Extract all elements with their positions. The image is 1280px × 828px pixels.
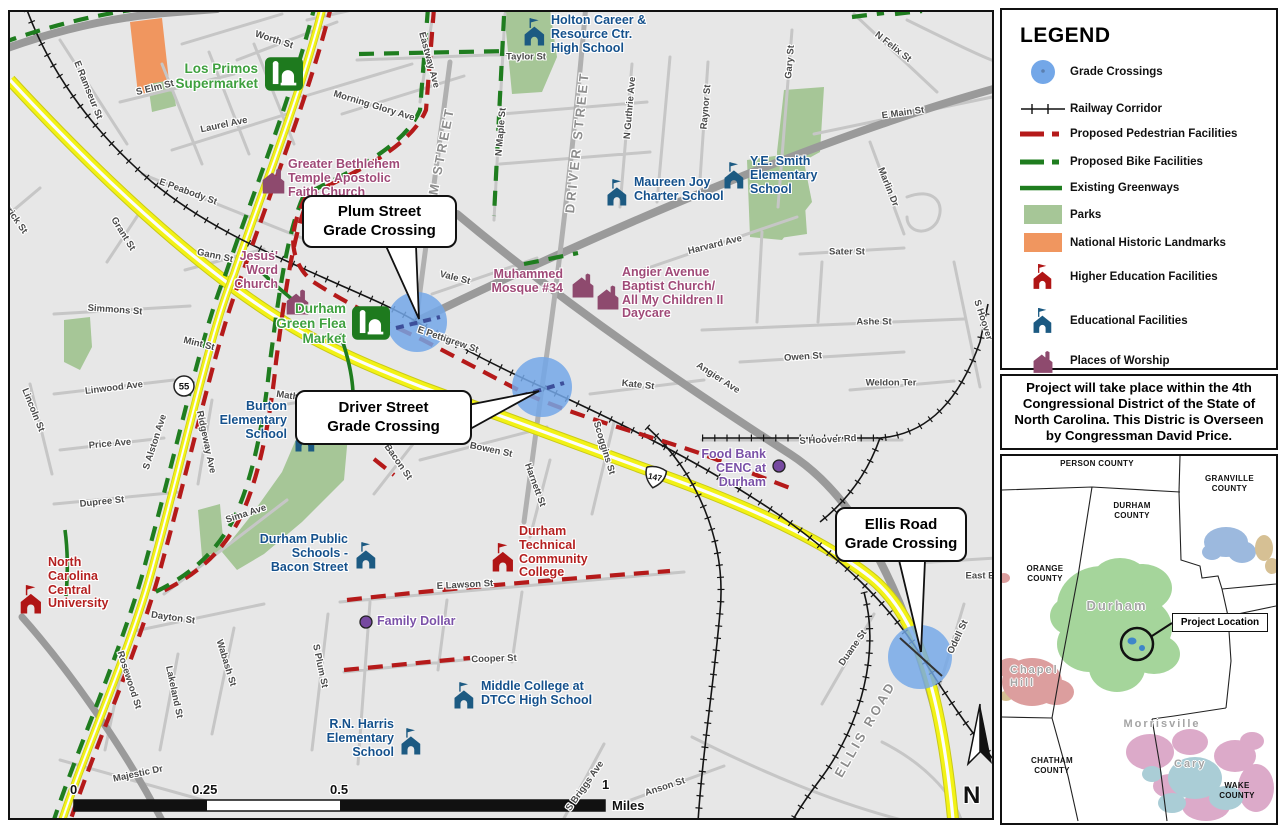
- inset-label-cary: Cary: [1174, 758, 1254, 770]
- street-label: Cooper St: [471, 653, 517, 666]
- legend-panel: LEGEND Grade Crossings Railway Corridor …: [1000, 8, 1278, 370]
- inset-label-chatham-county: CHATHAM COUNTY: [1012, 756, 1092, 776]
- legend-item-label: Existing Greenways: [1070, 182, 1179, 194]
- inset-label-morrisville: Morrisville: [1097, 718, 1227, 730]
- district-note-text: Project will take place within the 4th C…: [1008, 380, 1270, 444]
- main-map: 55 147 Wo: [8, 10, 994, 820]
- legend-item-label: Railway Corridor: [1070, 103, 1162, 115]
- legend-item-educational: Educational Facilities: [1016, 308, 1266, 334]
- scale-bar: [74, 800, 605, 811]
- pedestrian-dash-icon: [1016, 130, 1070, 138]
- facility-label: North Carolina Central University: [48, 556, 108, 611]
- facility-label: R.N. Harris Elementary School: [327, 718, 394, 759]
- street-label: Weldon Ter: [866, 378, 917, 389]
- legend-item-worship: Places of Worship: [1016, 348, 1266, 374]
- inset-project-location-label: Project Location: [1172, 613, 1268, 632]
- legend-item-parks: Parks: [1016, 205, 1266, 224]
- legend-title: LEGEND: [1020, 24, 1266, 48]
- legend-item-label: Parks: [1070, 209, 1101, 221]
- scale-unit: Miles: [612, 798, 645, 813]
- school-icon: [354, 542, 379, 575]
- callout-driver-street: Driver Street Grade Crossing: [295, 390, 472, 445]
- legend-item-bike: Proposed Bike Facilities: [1016, 156, 1266, 168]
- legend-item-label: Places of Worship: [1070, 355, 1169, 367]
- hied-icon: [18, 585, 45, 620]
- scale-tick-1: 1: [602, 777, 609, 792]
- facility-label: Durham Public Schools - Bacon Street: [260, 533, 348, 574]
- scale-tick-0: 0: [70, 782, 77, 797]
- facility-label: Durham Technical Community College: [519, 525, 588, 580]
- inset-label-durham-county: DURHAM COUNTY: [1087, 501, 1177, 521]
- facility-label: Middle College at DTCC High School: [481, 680, 592, 708]
- inset-label-orange-county: ORANGE COUNTY: [1010, 564, 1080, 584]
- park-swatch-icon: [1016, 205, 1070, 224]
- north-label: N: [963, 782, 980, 810]
- route-55-shield: 55: [179, 382, 190, 393]
- district-note: Project will take place within the 4th C…: [1000, 374, 1278, 450]
- grade-crossing-icon: [1016, 58, 1070, 86]
- legend-item-label: Proposed Bike Facilities: [1070, 156, 1203, 168]
- school-icon: [722, 162, 747, 195]
- scale-tick-05: 0.5: [330, 782, 348, 797]
- dot-icon: [359, 615, 373, 634]
- inset-label-chapel-hill: Chapel Hill: [1010, 664, 1080, 689]
- facility-label: Durham Green Flea Market: [276, 302, 346, 347]
- legend-item-label: National Historic Landmarks: [1070, 237, 1226, 249]
- street-label: Ashe St: [856, 317, 891, 328]
- facility-label: Los Primos Supermarket: [175, 62, 258, 92]
- worship-icon: [595, 282, 621, 316]
- inset-label-person-county: PERSON COUNTY: [1022, 459, 1172, 469]
- worship-icon: [570, 270, 596, 304]
- worship-icon: [1016, 348, 1070, 374]
- scale-tick-025: 0.25: [192, 782, 217, 797]
- legend-item-label: Proposed Pedestrian Facilities: [1070, 128, 1237, 140]
- educational-icon: [1016, 308, 1070, 334]
- inset-label-wake-county: WAKE COUNTY: [1202, 781, 1272, 801]
- legend-item-greenways: Existing Greenways: [1016, 182, 1266, 194]
- bike-dash-icon: [1016, 158, 1070, 166]
- street-label: Taylor St: [506, 52, 546, 63]
- inset-map: PERSON COUNTY GRANVILLE COUNTY DURHAM CO…: [1000, 454, 1278, 825]
- store-icon: [352, 306, 390, 345]
- inset-label-granville-county: GRANVILLE COUNTY: [1187, 474, 1272, 494]
- legend-item-label: Higher Education Facilities: [1070, 271, 1218, 283]
- legend-item-landmarks: National Historic Landmarks: [1016, 233, 1266, 252]
- school-icon: [452, 682, 477, 715]
- legend-item-railway: Railway Corridor: [1016, 102, 1266, 116]
- school-icon: [522, 18, 548, 52]
- facility-label: Family Dollar: [377, 615, 456, 629]
- facility-label: Angier Avenue Baptist Church/ All My Chi…: [622, 266, 723, 321]
- page: { "legend": { "title": "LEGEND", "items"…: [0, 0, 1280, 828]
- legend-item-pedestrian: Proposed Pedestrian Facilities: [1016, 128, 1266, 140]
- facility-label: Greater Bethlehem Temple Apostolic Faith…: [288, 158, 400, 199]
- facility-label: Holton Career & Resource Ctr. High Schoo…: [551, 14, 646, 55]
- legend-item-label: Grade Crossings: [1070, 66, 1163, 78]
- hied-icon: [490, 543, 517, 578]
- worship-icon: [260, 165, 287, 200]
- railway-icon: [1016, 102, 1070, 116]
- facility-label: Food Bank CENC at Durham: [701, 448, 766, 489]
- street-label: East E: [965, 571, 994, 582]
- facility-label: Burton Elementary School: [220, 400, 287, 441]
- legend-item-grade-crossings: Grade Crossings: [1016, 58, 1266, 86]
- facility-label: Maureen Joy Charter School: [634, 176, 724, 204]
- facility-label: Muhammed Mosque #34: [491, 268, 563, 296]
- facility-label: Y.E. Smith Elementary School: [750, 155, 817, 196]
- landmark-swatch-icon: [1016, 233, 1070, 252]
- callout-plum-street: Plum Street Grade Crossing: [302, 195, 457, 248]
- school-icon: [605, 179, 630, 212]
- greenway-line-icon: [1016, 184, 1070, 192]
- dot-icon: [772, 459, 786, 478]
- school-icon: [399, 728, 424, 761]
- legend-item-higher-ed: Higher Education Facilities: [1016, 264, 1266, 290]
- callout-ellis-road: Ellis Road Grade Crossing: [835, 507, 967, 562]
- higher-ed-icon: [1016, 264, 1070, 290]
- legend-item-label: Educational Facilities: [1070, 315, 1188, 327]
- store-icon: [265, 57, 303, 96]
- street-label: Sater St: [829, 247, 865, 258]
- inset-label-durham-city: Durham: [1057, 598, 1177, 613]
- facility-label: Jesus' Word Church: [234, 250, 278, 291]
